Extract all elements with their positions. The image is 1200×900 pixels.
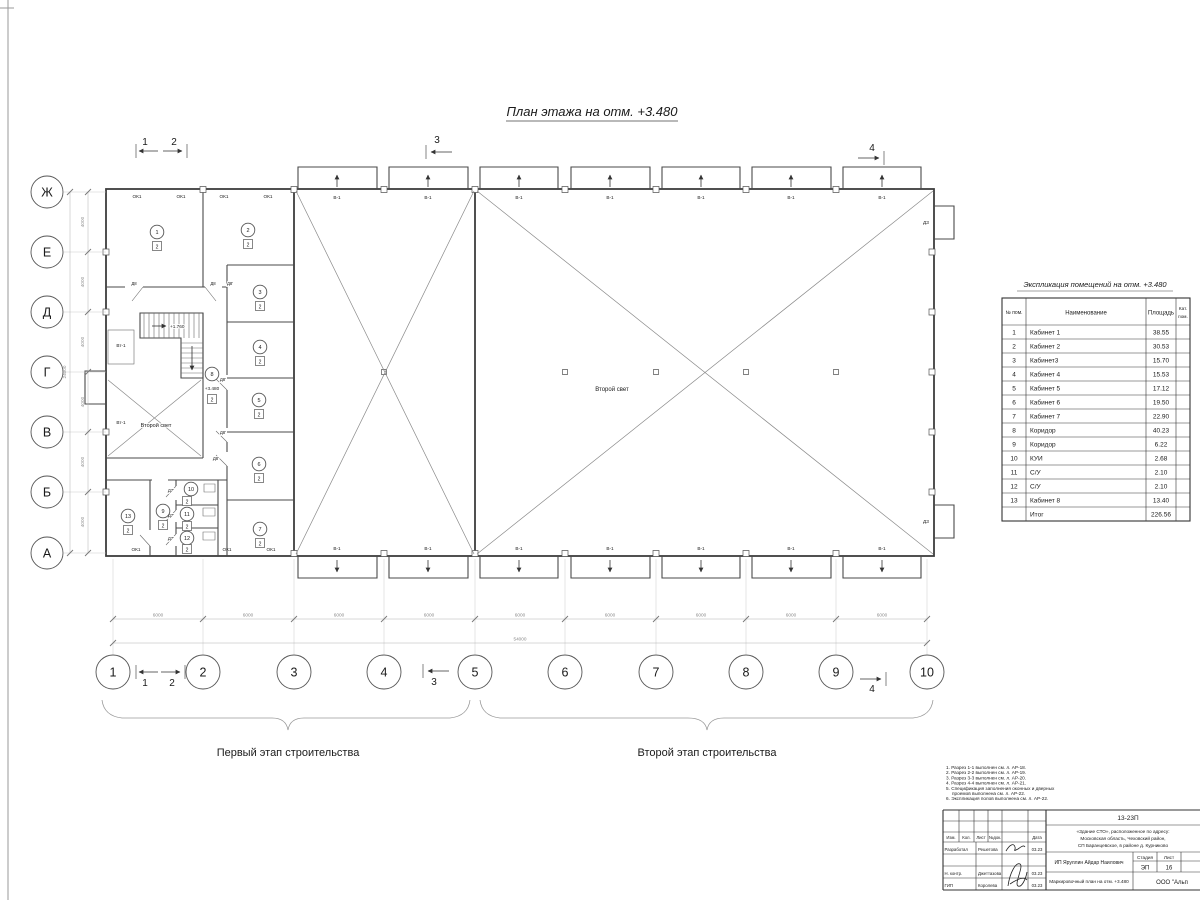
window-label: ОК1 (223, 547, 232, 552)
stage2-label: Второй этап строительства (638, 747, 778, 759)
room-category: 2 (258, 412, 261, 418)
door-label: Д8 (210, 281, 216, 286)
gate-label: В-1 (606, 546, 614, 551)
notes: 1. Разрез 1-1 выполнен см. л. АР-18. 2. … (946, 765, 1055, 801)
second-light-label: Второй свет (141, 422, 172, 429)
drawing-title: Маркировочный план на отм. +3.480 (1049, 878, 1129, 884)
gate-label: В-1 (697, 546, 705, 551)
room-number: 13 (125, 514, 131, 520)
door-label: Д7' (168, 536, 174, 541)
svg-text:Кабинет 5: Кабинет 5 (1030, 385, 1061, 393)
col-header: Кат. (1179, 306, 1187, 311)
tb-col-header: Лист (976, 835, 985, 840)
axis-bubble: 9 (833, 666, 840, 680)
axis-bubble: Ж (41, 186, 53, 200)
svg-text:9: 9 (1012, 442, 1016, 449)
opening-labels: ОК1 ОК1 ОК1 ОК1 ОК1 ОК1 ОК1 В-1 В-1 В-1 … (116, 194, 929, 552)
tb-role: ГИП (945, 883, 954, 888)
svg-text:Кабинет3: Кабинет3 (1030, 357, 1059, 365)
room-category: 2 (247, 242, 250, 248)
gate-label: В-1 (787, 546, 795, 551)
door-label: Д7' (168, 488, 174, 493)
room-category: 2 (162, 523, 165, 529)
tb-role: Н. контр. (945, 871, 963, 876)
gate-label: В-1 (333, 546, 341, 551)
axis-bubble: Г (44, 366, 51, 380)
sheet-frame (0, 0, 14, 900)
gate-label: В-1 (333, 195, 341, 200)
svg-text:3: 3 (1012, 358, 1016, 365)
room-number: 11 (184, 512, 190, 518)
col-header: пом. (1178, 314, 1188, 319)
axis-bubble: Е (43, 246, 51, 260)
dim-row: 4000 (80, 516, 85, 527)
room-number: 10 (188, 487, 194, 493)
section-markers: 1 2 3 4 1 2 3 4 (136, 135, 886, 695)
gate-label: В-1 (878, 195, 886, 200)
dim-row: 4000 (80, 456, 85, 467)
gate-arrows (337, 175, 882, 572)
svg-text:Коридор: Коридор (1030, 428, 1056, 435)
room-number: 12 (184, 536, 190, 542)
svg-text:4: 4 (1012, 372, 1016, 379)
stair-elevation: +1.760 (170, 324, 185, 329)
main-title: План этажа на отм. +3.480 (506, 104, 678, 121)
svg-text:7: 7 (1012, 414, 1016, 421)
pilasters (103, 187, 935, 557)
section-number: 1 (142, 137, 148, 148)
svg-text:5: 5 (1012, 386, 1016, 393)
dim-total-height: 24000 (62, 365, 67, 378)
wc-fixtures (203, 484, 215, 540)
note-line: 6. Экспликация полов выполнена см. л. АР… (946, 796, 1048, 801)
svg-text:Коридор: Коридор (1030, 442, 1056, 449)
svg-text:38.55: 38.55 (1153, 330, 1170, 337)
top-gate-bumps (298, 167, 921, 189)
project-address: СП Баранцевское, в районе д. Курниково (1078, 842, 1169, 848)
svg-text:С/У: С/У (1030, 470, 1042, 477)
svg-text:6: 6 (1012, 400, 1016, 407)
page-title: План этажа на отм. +3.480 (506, 104, 678, 119)
door-label: Д8 (131, 281, 137, 286)
stage-braces: Первый этап строительства Второй этап ст… (102, 700, 933, 759)
axis-bubble: 1 (110, 666, 117, 680)
gate-label: В-1 (697, 195, 705, 200)
room-number: 6 (257, 462, 260, 468)
svg-text:17.12: 17.12 (1153, 386, 1170, 393)
dim-bay: 6000 (515, 613, 526, 618)
dim-bay: 6000 (153, 613, 164, 618)
svg-text:1: 1 (1012, 330, 1016, 337)
right-door-bumps (934, 206, 954, 538)
svg-text:10: 10 (1010, 456, 1018, 463)
axis-bubble: 8 (743, 666, 750, 680)
section-number: 2 (171, 137, 177, 148)
second-light-label: Второй свет (595, 386, 629, 393)
drawing-sheet: План этажа на отм. +3.480 (0, 0, 1200, 900)
room-category: 2 (211, 397, 214, 403)
door-label: Д8' (220, 430, 226, 435)
room-schedule-table: Экспликация помещений на отм. +3.480 № п… (1002, 280, 1190, 521)
room-category: 2 (156, 244, 159, 250)
svg-text:11: 11 (1011, 470, 1018, 477)
gate-label: В-1 (424, 546, 432, 551)
dim-total-width: 54000 (513, 637, 526, 642)
section-number: 4 (869, 143, 875, 154)
room-number: 1 (155, 230, 158, 236)
axis-bubble: 2 (200, 666, 207, 680)
floor-elevation: +3.480 (205, 386, 220, 391)
vent-label: Вт-1 (116, 420, 126, 425)
svg-text:8: 8 (1012, 428, 1016, 435)
dim-bay: 6000 (786, 613, 797, 618)
window-label: ОК1 (264, 194, 273, 199)
tb-name: Королева (978, 883, 998, 888)
svg-text:2.10: 2.10 (1155, 484, 1168, 491)
svg-text:6.22: 6.22 (1155, 442, 1168, 449)
stage1-label: Первый этап строительства (217, 747, 361, 759)
tb-col-header: Изм. (946, 835, 955, 840)
title-block: 13-23П «Здание СТО», расположенное по ад… (943, 810, 1200, 890)
axis-bubble: 10 (920, 666, 934, 680)
axis-bubble: 4 (381, 666, 388, 680)
axis-bubble: 5 (472, 666, 479, 680)
door-label: Д8' (227, 281, 233, 286)
window-label: ОК1 (133, 194, 142, 199)
tb-col-header: Дата (1032, 835, 1042, 840)
room-category: 2 (186, 499, 189, 505)
axis-bubble: Д (43, 306, 52, 320)
window-label: ОК1 (132, 547, 141, 552)
svg-text:С/У: С/У (1030, 484, 1042, 491)
dim-bay: 6000 (696, 613, 707, 618)
axis-bubble: 3 (291, 666, 298, 680)
svg-text:КУИ: КУИ (1030, 456, 1043, 463)
signature (1008, 864, 1027, 887)
tb-date: 03.23 (1032, 883, 1043, 888)
client-name: ИП Яруллин Айдар Наилович (1054, 859, 1123, 866)
svg-text:22.90: 22.90 (1153, 414, 1170, 421)
dim-bay: 6000 (243, 613, 254, 618)
room-markers: 1 2 2 2 3 2 4 2 5 2 6 2 7 2 8 +3.480 2 9… (121, 223, 267, 553)
gate-label: В-1 (515, 195, 523, 200)
dim-row: 4000 (80, 396, 85, 407)
dim-row: 4000 (80, 216, 85, 227)
room-category: 2 (127, 528, 130, 534)
grid-axes: 1 2 3 4 5 6 7 8 9 10 Ж Е Д Г В Б А (31, 176, 944, 689)
sheet-label: Лист (1164, 855, 1175, 860)
project-address: «Здание СТО», расположенное по адресу: (1076, 829, 1169, 834)
tb-name: Джеттазова (978, 871, 1002, 876)
room-category: 2 (259, 541, 262, 547)
window-label: ОК1 (220, 194, 229, 199)
tb-col-header: Кол. (962, 835, 971, 840)
tb-date: 03.23 (1032, 847, 1043, 852)
col-header: № пом. (1005, 310, 1022, 316)
door-label: Д8' (220, 377, 226, 382)
stage-value: ЭП (1141, 866, 1150, 872)
door-label: ДЗ (923, 519, 929, 524)
svg-text:2.68: 2.68 (1155, 456, 1168, 463)
tb-date: 03.23 (1032, 871, 1043, 876)
axis-bubble: Б (43, 486, 51, 500)
section-number: 4 (869, 684, 875, 695)
svg-text:2.10: 2.10 (1155, 470, 1168, 477)
bottom-gate-bumps (298, 556, 921, 578)
signature (1006, 845, 1025, 851)
window-label: ОК1 (177, 194, 186, 199)
section-number: 3 (434, 135, 440, 146)
room-number: 4 (258, 345, 261, 351)
gate-label: В-1 (424, 195, 432, 200)
svg-text:40.23: 40.23 (1153, 428, 1170, 435)
svg-text:Кабинет 8: Кабинет 8 (1030, 497, 1061, 505)
room-number: 2 (246, 228, 249, 234)
axis-bubble: 6 (562, 666, 569, 680)
section-number: 3 (431, 677, 437, 688)
project-address: Московская область, Чеховский район, (1080, 835, 1165, 841)
svg-text:30.53: 30.53 (1153, 344, 1170, 351)
room-category: 2 (186, 524, 189, 530)
svg-text:Кабинет 2: Кабинет 2 (1030, 343, 1061, 351)
vent-label: Вт-1 (116, 343, 126, 348)
gate-label: В-1 (515, 546, 523, 551)
tb-col-header: №док. (989, 835, 1002, 840)
dim-row: 4000 (80, 276, 85, 287)
svg-text:Кабинет 4: Кабинет 4 (1030, 371, 1061, 379)
sheet-value: 16 (1166, 866, 1173, 872)
svg-text:13.40: 13.40 (1153, 498, 1170, 505)
section-number: 2 (169, 678, 175, 689)
room-category: 2 (258, 476, 261, 482)
room-category: 2 (259, 359, 262, 365)
col-header: Наименование (1065, 311, 1107, 317)
tb-role: Разработал (945, 847, 969, 852)
room-category: 2 (186, 547, 189, 553)
svg-text:Кабинет 7: Кабинет 7 (1030, 413, 1061, 421)
dim-bay: 6000 (877, 613, 888, 618)
svg-text:Кабинет 6: Кабинет 6 (1030, 399, 1061, 407)
svg-text:13: 13 (1010, 498, 1018, 505)
room-number: 7 (258, 527, 261, 533)
section-number: 1 (142, 678, 148, 689)
svg-text:Итог: Итог (1030, 512, 1044, 519)
svg-text:15.53: 15.53 (1153, 372, 1170, 379)
svg-text:226.56: 226.56 (1151, 512, 1171, 519)
gate-label: В-1 (787, 195, 795, 200)
tb-name: Решетова (978, 847, 998, 852)
schedule-title: Экспликация помещений на отм. +3.480 (1023, 280, 1167, 289)
stage-label: Стадия (1137, 855, 1153, 860)
window-label: ОК1 (267, 547, 276, 552)
floor-plan-drawing: План этажа на отм. +3.480 (0, 0, 1200, 900)
dim-bay: 6000 (424, 613, 435, 618)
door-label: Д8' (213, 456, 219, 461)
company-name: ООО "Альп (1156, 880, 1188, 886)
svg-text:Кабинет 1: Кабинет 1 (1030, 329, 1061, 337)
dim-bay: 6000 (334, 613, 345, 618)
room-number: 9 (161, 509, 164, 515)
dim-bay: 6000 (605, 613, 616, 618)
axis-bubble: В (43, 426, 51, 440)
room-number: 8 (210, 372, 213, 378)
svg-text:2: 2 (1012, 344, 1016, 351)
axis-bubble: А (43, 547, 52, 561)
room-category: 2 (259, 304, 262, 310)
svg-text:12: 12 (1010, 484, 1018, 491)
svg-text:15.70: 15.70 (1153, 358, 1170, 365)
schedule-rows: 1Кабинет 138.55 2Кабинет 230.53 3Кабинет… (1010, 329, 1171, 519)
dim-row: 4000 (80, 336, 85, 347)
door-label: ДЗ (923, 220, 929, 225)
gate-label: В-1 (606, 195, 614, 200)
gate-label: В-1 (878, 546, 886, 551)
svg-text:19.50: 19.50 (1153, 400, 1170, 407)
axis-bubble: 7 (653, 666, 660, 680)
col-header: Площадь (1148, 311, 1174, 317)
project-code: 13-23П (1117, 815, 1139, 822)
room-number: 5 (257, 398, 260, 404)
room-number: 3 (258, 290, 261, 296)
